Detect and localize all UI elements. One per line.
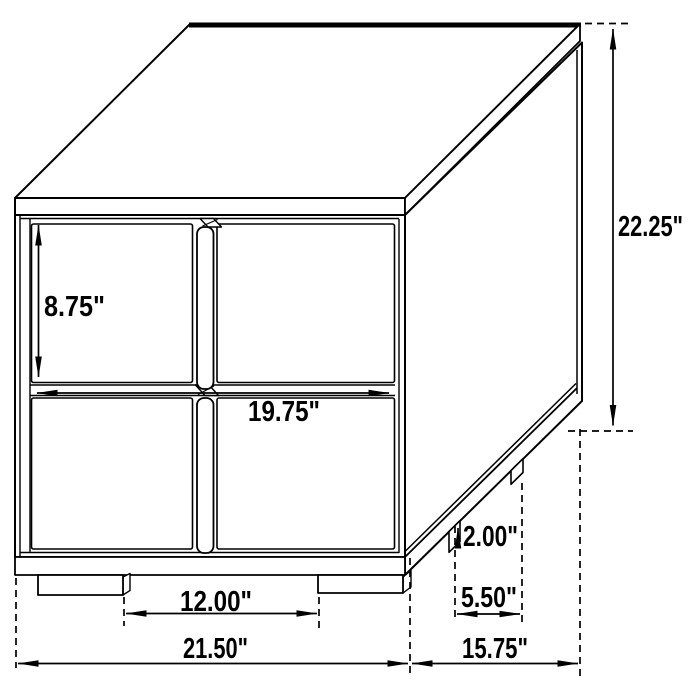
- plinth-base: [15, 557, 405, 575]
- diagram-canvas: 8.75" 19.75" 22.25" 2.00" 5.50": [0, 0, 700, 700]
- dimension-front-leg-spacing: 12.00": [126, 586, 317, 618]
- dim-label-leg-height: 2.00": [463, 521, 518, 553]
- dim-label-side-leg-spacing: 5.50": [461, 582, 517, 614]
- front-right-leg: [318, 575, 403, 593]
- dimension-leg-height: 2.00": [458, 521, 518, 553]
- top-panel-front-edge: [15, 198, 405, 215]
- dimension-overall-width: 21.50": [18, 633, 408, 665]
- handle-upper-bar: [197, 227, 214, 389]
- dimension-side-leg-spacing: 5.50": [457, 582, 520, 614]
- nightstand-dimension-diagram: 8.75" 19.75" 22.25" 2.00" 5.50": [0, 0, 700, 700]
- dim-label-drawer-height: 8.75": [44, 291, 105, 323]
- front-left-leg-side: [123, 574, 130, 596]
- dim-label-overall-height: 22.25": [618, 211, 683, 243]
- handle-lower-bar: [197, 398, 214, 553]
- dim-label-overall-width: 21.50": [183, 633, 248, 665]
- front-left-leg: [38, 575, 123, 595]
- dimension-overall-depth: 15.75": [412, 633, 578, 665]
- dim-label-front-leg-spacing: 12.00": [180, 586, 252, 618]
- dimension-overall-height: 22.25": [613, 29, 683, 426]
- dim-label-overall-depth: 15.75": [462, 633, 528, 665]
- dim-label-drawer-width: 19.75": [248, 396, 320, 428]
